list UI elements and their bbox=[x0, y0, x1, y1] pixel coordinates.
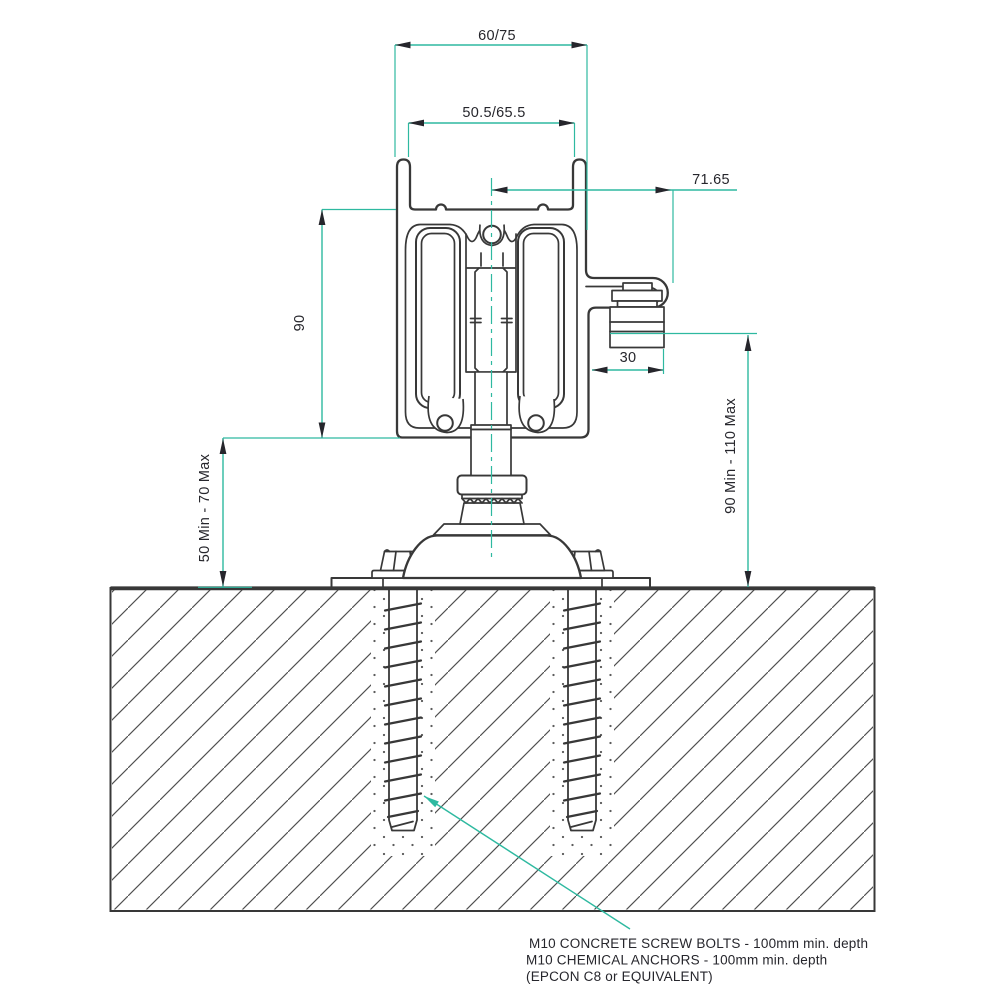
dim-bracket-offset: 71.65 bbox=[492, 172, 737, 193]
dim-floor-gap-label: 50 Min - 70 Max bbox=[197, 453, 213, 562]
track-profile bbox=[397, 160, 668, 476]
dim-mount-range: 90 Min - 110 Max bbox=[723, 335, 751, 587]
side-fastener bbox=[610, 283, 664, 348]
roller-right bbox=[518, 228, 564, 408]
concrete-hatching bbox=[112, 590, 873, 910]
gate-track-section-drawing: 60/75 50.5/65.5 71.65 90 30 50 Min - 70 … bbox=[0, 0, 1000, 1000]
roller-left bbox=[416, 228, 460, 408]
axle-hole-right bbox=[528, 415, 544, 431]
axle-hole-left bbox=[437, 415, 453, 431]
drawing-page: 60/75 50.5/65.5 71.65 90 30 50 Min - 70 … bbox=[0, 0, 1000, 1000]
concrete-foundation bbox=[111, 588, 875, 911]
dim-outer-width-label: 60/75 bbox=[478, 28, 516, 44]
dim-nut-width: 30 bbox=[592, 350, 664, 373]
callout-line-3: (EPCON C8 or EQUIVALENT) bbox=[526, 969, 713, 984]
dim-inner-width-label: 50.5/65.5 bbox=[462, 105, 525, 121]
callout-line-2: M10 CHEMICAL ANCHORS - 100mm min. depth bbox=[526, 953, 827, 968]
dim-bracket-offset-label: 71.65 bbox=[692, 172, 730, 188]
dim-body-height-label: 90 bbox=[292, 315, 308, 332]
dim-outer-width: 60/75 bbox=[395, 28, 587, 48]
callout-line-1: M10 CONCRETE SCREW BOLTS - 100mm min. de… bbox=[529, 936, 868, 951]
dim-floor-gap: 50 Min - 70 Max bbox=[197, 438, 226, 587]
concrete-screw-right bbox=[564, 589, 600, 831]
dim-nut-width-label: 30 bbox=[620, 350, 637, 366]
dim-inner-width: 50.5/65.5 bbox=[409, 105, 575, 126]
concrete-screw-left bbox=[385, 589, 421, 831]
dim-body-height: 90 bbox=[292, 210, 325, 439]
dim-mount-range-label: 90 Min - 110 Max bbox=[723, 398, 739, 514]
